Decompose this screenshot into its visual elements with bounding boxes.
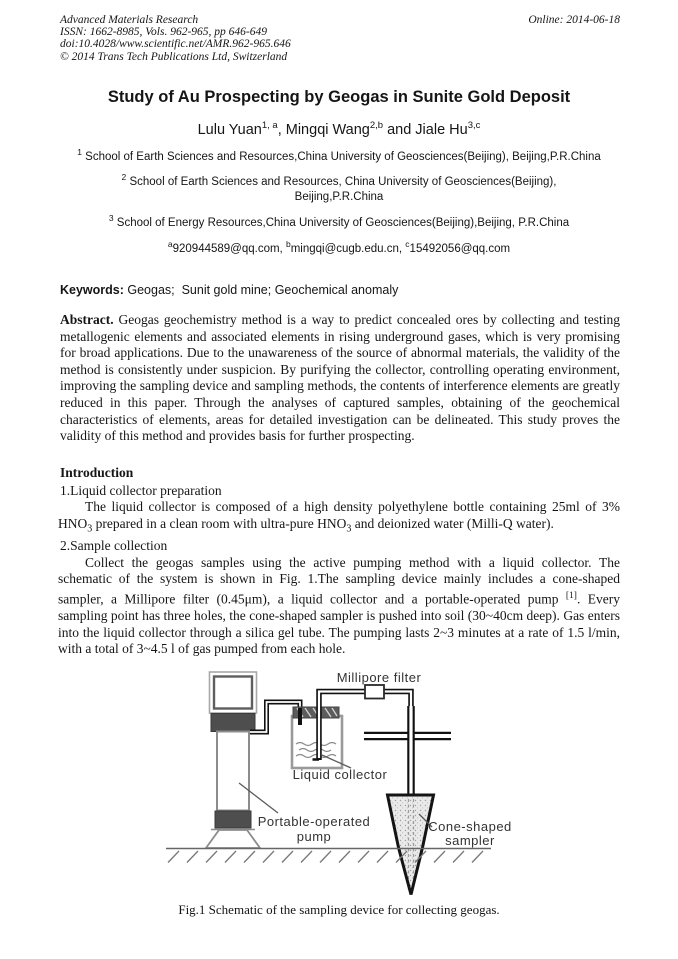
figure-1: Millipore filter Liquid collector Portab…	[0, 664, 678, 900]
pump-body	[217, 731, 249, 810]
affiliation-1: 1 School of Earth Sciences and Resources…	[77, 145, 601, 165]
pump-top-box-inner	[214, 676, 252, 708]
label-cone-line1: Cone-shaped	[428, 819, 512, 834]
journal-name: Advanced Materials Research	[60, 14, 291, 26]
journal-header: Advanced Materials Research ISSN: 1662-8…	[60, 14, 620, 63]
figure-caption: Fig.1 Schematic of the sampling device f…	[0, 902, 678, 918]
affiliations-block: 1 School of Earth Sciences and Resources…	[0, 145, 678, 257]
online-date: Online: 2014-06-18	[528, 14, 620, 26]
label-millipore-filter: Millipore filter	[337, 670, 422, 685]
subsection-1-title: 1.Liquid collector preparation	[60, 483, 620, 500]
introduction-heading: Introduction	[60, 465, 620, 481]
pump-lower-band	[215, 811, 251, 828]
paper-title: Study of Au Prospecting by Geogas in Sun…	[0, 88, 678, 107]
pump-upper-band	[211, 713, 255, 731]
cone-sampler-stipple	[388, 795, 434, 895]
abstract-paragraph: Abstract. Geogas geochemistry method is …	[60, 312, 620, 445]
label-cone-line2: sampler	[445, 833, 495, 848]
doi-line: doi:10.4028/www.scientific.net/AMR.962-9…	[60, 38, 291, 50]
label-pump-line1: Portable-operated	[258, 814, 371, 829]
journal-header-left: Advanced Materials Research ISSN: 1662-8…	[60, 14, 291, 63]
paragraph-sample-collection: Collect the geogas samples using the act…	[58, 555, 620, 658]
subsection-2-title: 2.Sample collection	[60, 538, 620, 555]
emails-line: a920944589@qq.com, bmingqi@cugb.edu.cn, …	[77, 237, 601, 257]
sampling-device-schematic: Millipore filter Liquid collector Portab…	[129, 664, 549, 900]
copyright-line: © 2014 Trans Tech Publications Ltd, Swit…	[60, 51, 291, 63]
authors-line: Lulu Yuan1, a, Mingqi Wang2,b and Jiale …	[0, 120, 678, 138]
keywords-line: Keywords: Geogas; Sunit gold mine; Geoch…	[60, 283, 620, 297]
ground-hatching	[168, 851, 483, 863]
pump-base	[206, 830, 260, 848]
issn-line: ISSN: 1662-8985, Vols. 962-965, pp 646-6…	[60, 26, 291, 38]
affiliation-2: 2 School of Earth Sciences and Resources…	[77, 170, 601, 205]
millipore-filter-box	[365, 685, 384, 699]
paper-page: Advanced Materials Research ISSN: 1662-8…	[0, 0, 678, 959]
label-pump-line2: pump	[297, 829, 332, 844]
label-liquid-collector: Liquid collector	[293, 767, 388, 782]
paragraph-liquid-collector: The liquid collector is composed of a hi…	[58, 499, 620, 538]
affiliation-3: 3 School of Energy Resources,China Unive…	[77, 211, 601, 231]
